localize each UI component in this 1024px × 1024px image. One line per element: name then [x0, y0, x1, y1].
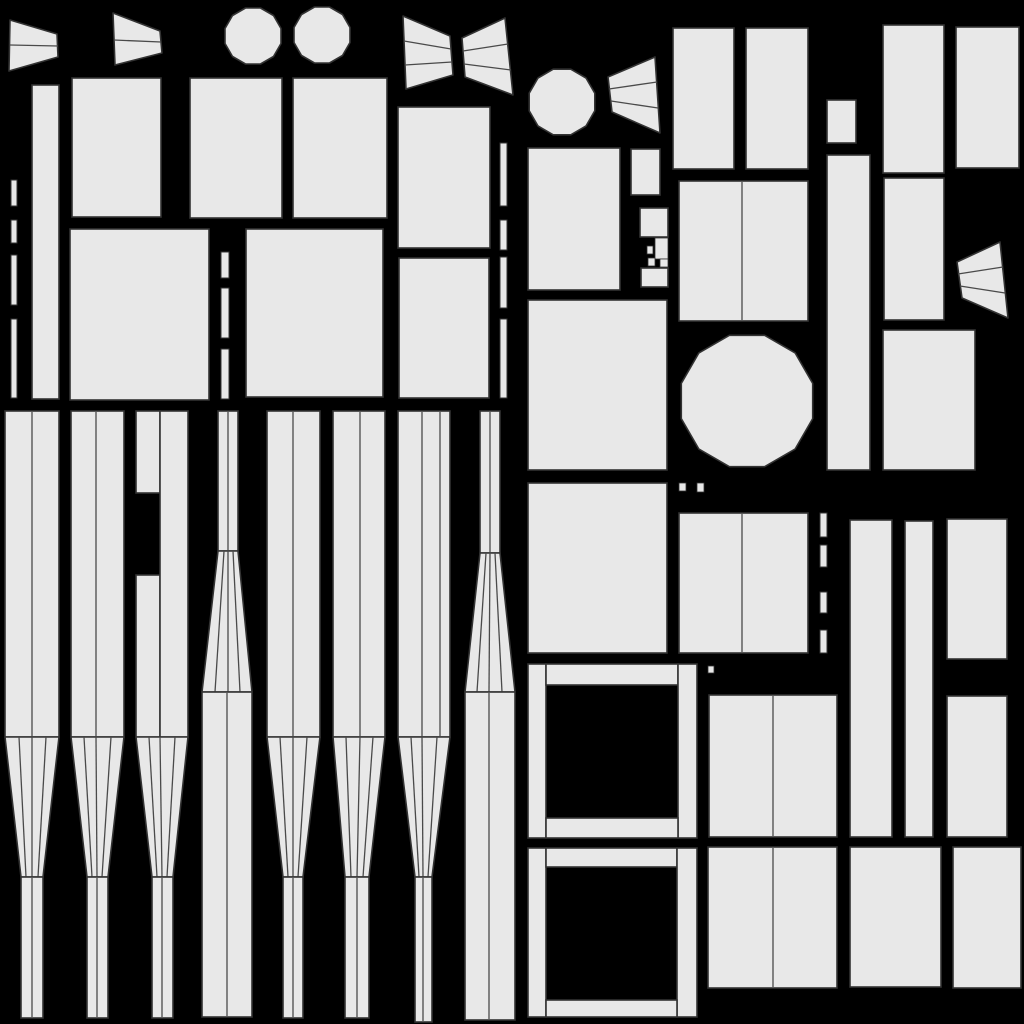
fan-wedge-top-left-1 — [9, 20, 58, 71]
panel — [884, 178, 944, 320]
panel-tall — [850, 520, 892, 837]
frame-bar-left — [528, 848, 546, 1017]
panel — [70, 229, 209, 400]
spire-strip — [218, 411, 238, 551]
tower-column — [345, 877, 369, 1018]
panel-small — [631, 149, 660, 195]
tower-taper — [71, 737, 124, 877]
bowtie-fan-left — [403, 16, 453, 89]
panel — [883, 25, 944, 173]
panel-pair — [679, 181, 808, 321]
fan-wedge-right — [957, 242, 1008, 318]
panel — [399, 258, 489, 398]
panel — [293, 78, 387, 218]
frame-bar-bottom — [546, 1000, 677, 1017]
tower-strip — [160, 411, 188, 737]
bowtie-fan-right — [462, 18, 513, 95]
uv-atlas-canvas — [0, 0, 1024, 1024]
uv-texture-atlas — [0, 0, 1024, 1024]
panel — [956, 27, 1019, 168]
cluster-bottom — [641, 268, 668, 287]
spire-strip — [480, 411, 500, 553]
panel — [528, 300, 667, 470]
panel — [673, 28, 734, 169]
panel-pair — [679, 513, 808, 653]
panel — [190, 78, 282, 218]
panel-tall-narrow — [32, 85, 59, 399]
tower-column — [415, 877, 432, 1022]
frame-bar-top — [546, 664, 678, 685]
tower-taper — [5, 737, 59, 877]
spire-column — [202, 692, 252, 1017]
panel — [528, 483, 667, 653]
tower-column — [21, 877, 43, 1018]
tower-taper — [136, 737, 188, 877]
tower-column — [283, 877, 303, 1018]
frame-bar-right — [677, 848, 697, 1017]
panel-tall — [905, 521, 933, 837]
tower-strip-notched-lower — [136, 575, 160, 737]
seam-dashes — [221, 252, 229, 399]
tower-strip — [5, 411, 59, 737]
tower-taper — [267, 737, 320, 877]
frame-bar-left — [528, 664, 546, 838]
tower-strip-notched-upper — [136, 411, 160, 493]
frame-bar-top — [546, 848, 677, 867]
seam-dashes — [820, 513, 827, 653]
panel — [850, 847, 941, 987]
tower-strip — [267, 411, 320, 737]
panel-small — [827, 100, 856, 143]
disc-large — [681, 335, 812, 466]
spire-column — [465, 692, 515, 1020]
panel-pair — [709, 695, 837, 837]
tower-strip — [71, 411, 124, 737]
tower-strip — [333, 411, 385, 737]
panel — [746, 28, 808, 169]
spire-flare — [465, 553, 515, 692]
seam-dashes — [500, 143, 507, 398]
cluster-top — [640, 208, 668, 237]
frame-bar-right — [678, 664, 697, 838]
frame-bar-bottom — [546, 818, 678, 838]
panel — [947, 696, 1007, 837]
panel-tall — [827, 155, 870, 470]
tower-strip — [398, 411, 450, 737]
panel — [246, 229, 383, 397]
tower-column — [152, 877, 173, 1018]
tower-taper — [333, 737, 385, 877]
disc-middle — [529, 69, 595, 135]
fan-wedge-top-left-2 — [113, 13, 162, 65]
panel — [398, 107, 490, 248]
seam-dashes — [11, 180, 17, 398]
panel — [883, 330, 975, 470]
disc-top-1 — [225, 8, 281, 64]
panel — [947, 519, 1007, 659]
tower-column — [87, 877, 108, 1018]
panel — [72, 78, 161, 217]
fan-wedge-middle — [608, 57, 660, 133]
cluster-bits — [647, 238, 668, 267]
panel — [528, 148, 620, 290]
panel — [953, 847, 1021, 988]
spire-flare — [202, 551, 252, 692]
tower-taper — [398, 737, 450, 877]
disc-top-2 — [294, 7, 350, 63]
panel-pair — [708, 847, 837, 988]
